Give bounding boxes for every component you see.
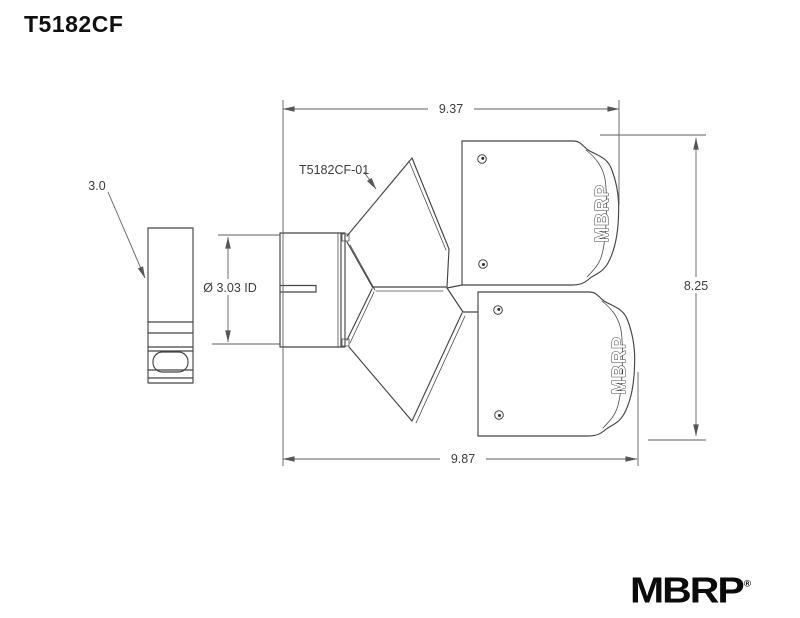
dim-tube-od: 3.0 (88, 179, 105, 193)
clamp-slot (153, 352, 188, 372)
mbrp-logo: MBRP® (630, 572, 751, 608)
dim-inlet-diameter: Ø 3.03 ID (203, 281, 257, 295)
dim-right-height: 8.25 (684, 279, 708, 293)
dim-top-width: 9.37 (439, 102, 463, 116)
inlet-tube-side-view (148, 228, 193, 383)
extension-lines (212, 100, 706, 466)
dim-bottom-width: 9.87 (451, 452, 475, 466)
mbrp-logo-text: MBRP (630, 570, 743, 610)
svg-text:MBRP: MBRP (592, 184, 612, 243)
inlet-front-view (280, 233, 349, 347)
technical-drawing: MBRP MBRP 9.37 (0, 0, 800, 618)
registered-mark: ® (744, 580, 751, 590)
svg-text:MBRP: MBRP (609, 336, 629, 395)
lower-tip-brand: MBRP (609, 336, 629, 395)
y-pipe-cones (347, 158, 478, 423)
upper-tip-brand: MBRP (592, 184, 612, 243)
part-label: T5182CF-01 (299, 163, 369, 177)
drawing-sheet: T5182CF (0, 0, 800, 618)
